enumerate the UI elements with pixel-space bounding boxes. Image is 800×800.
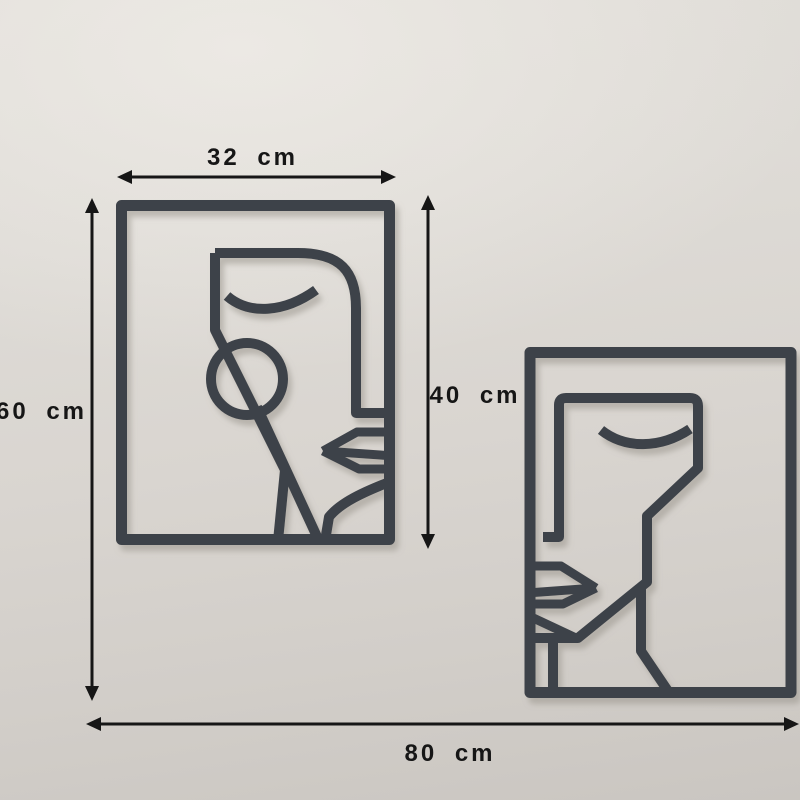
arrow-left-icon	[86, 717, 101, 731]
right-abstract-face-panel	[527, 353, 791, 693]
panel-width-label: 32 cm	[180, 146, 325, 170]
left-face-neck-line	[257, 407, 319, 541]
right-face-collar-line	[641, 588, 668, 691]
arrow-up-icon	[421, 195, 435, 210]
dimension-annotations	[85, 170, 799, 731]
left-abstract-face-panel	[122, 206, 395, 542]
arrow-right-icon	[381, 170, 396, 184]
total-width-label: 80 cm	[385, 742, 515, 766]
right-face-forehead-line	[543, 398, 698, 537]
right-face-eyebrow-line	[601, 429, 690, 444]
panel-height-label: 40 cm	[425, 384, 525, 408]
arrow-left-icon	[117, 170, 132, 184]
left-face-chin-line	[325, 481, 392, 541]
left-face-eyebrow-line	[227, 290, 316, 309]
arrow-up-icon	[85, 198, 99, 213]
arrow-right-icon	[784, 717, 799, 731]
wall-art-scene	[0, 0, 800, 800]
total-height-label: 60 cm	[0, 400, 89, 424]
arrow-down-icon	[85, 686, 99, 701]
product-photo: 32 cm 60 cm 40 cm 80 cm	[0, 0, 800, 800]
arrow-down-icon	[421, 534, 435, 549]
